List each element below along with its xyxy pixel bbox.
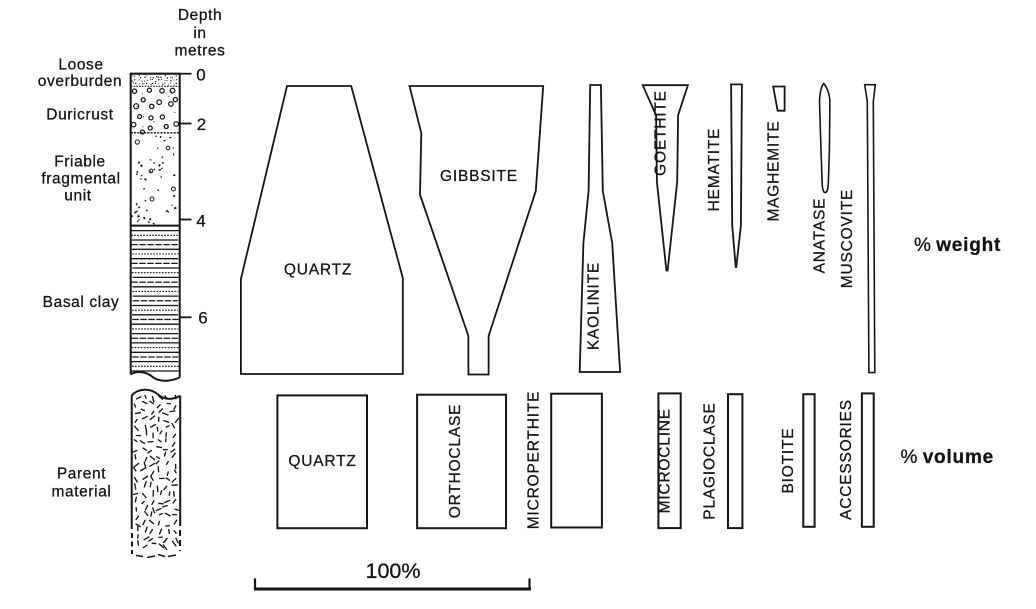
svg-text:ORTHOCLASE: ORTHOCLASE [447,404,464,519]
svg-text:BIOTITE: BIOTITE [780,428,797,494]
svg-text:fragmental: fragmental [41,171,120,188]
svg-text:ACCESSORIES: ACCESSORIES [838,399,855,520]
svg-text:6: 6 [198,309,207,328]
svg-text:GOETHITE: GOETHITE [653,90,670,176]
svg-text:in: in [193,25,206,42]
svg-text:QUARTZ: QUARTZ [288,453,356,470]
svg-text:4: 4 [196,212,205,231]
svg-text:Loose: Loose [58,57,103,74]
svg-text:0: 0 [196,66,205,85]
svg-text:MICROPERTHITE: MICROPERTHITE [526,391,543,529]
svg-text:overburden: overburden [38,73,122,90]
svg-text:material: material [52,484,112,501]
svg-text:ANATASE: ANATASE [812,198,829,274]
svg-text:HEMATITE: HEMATITE [706,128,723,212]
svg-text:MICROCLINE: MICROCLINE [657,408,674,513]
svg-text:metres: metres [175,43,226,60]
svg-text:MAGHEMITE: MAGHEMITE [766,120,783,221]
svg-text:QUARTZ: QUARTZ [284,262,352,279]
svg-text:Depth: Depth [178,7,222,24]
svg-text:Parent: Parent [57,466,106,483]
svg-text:GIBBSITE: GIBBSITE [440,168,518,185]
svg-text:2: 2 [197,115,206,134]
svg-text:unit: unit [64,188,91,205]
svg-text:100%: 100% [366,559,421,583]
svg-text:Basal clay: Basal clay [43,294,120,311]
svg-text:% weight: % weight [914,235,1001,256]
svg-text:Friable: Friable [54,154,106,171]
svg-text:PLAGIOCLASE: PLAGIOCLASE [702,402,719,519]
svg-text:% volume: % volume [901,447,995,468]
svg-text:KAOLINITE: KAOLINITE [586,262,603,350]
svg-text:MUSCOVITE: MUSCOVITE [839,189,856,288]
svg-text:Duricrust: Duricrust [46,107,114,124]
